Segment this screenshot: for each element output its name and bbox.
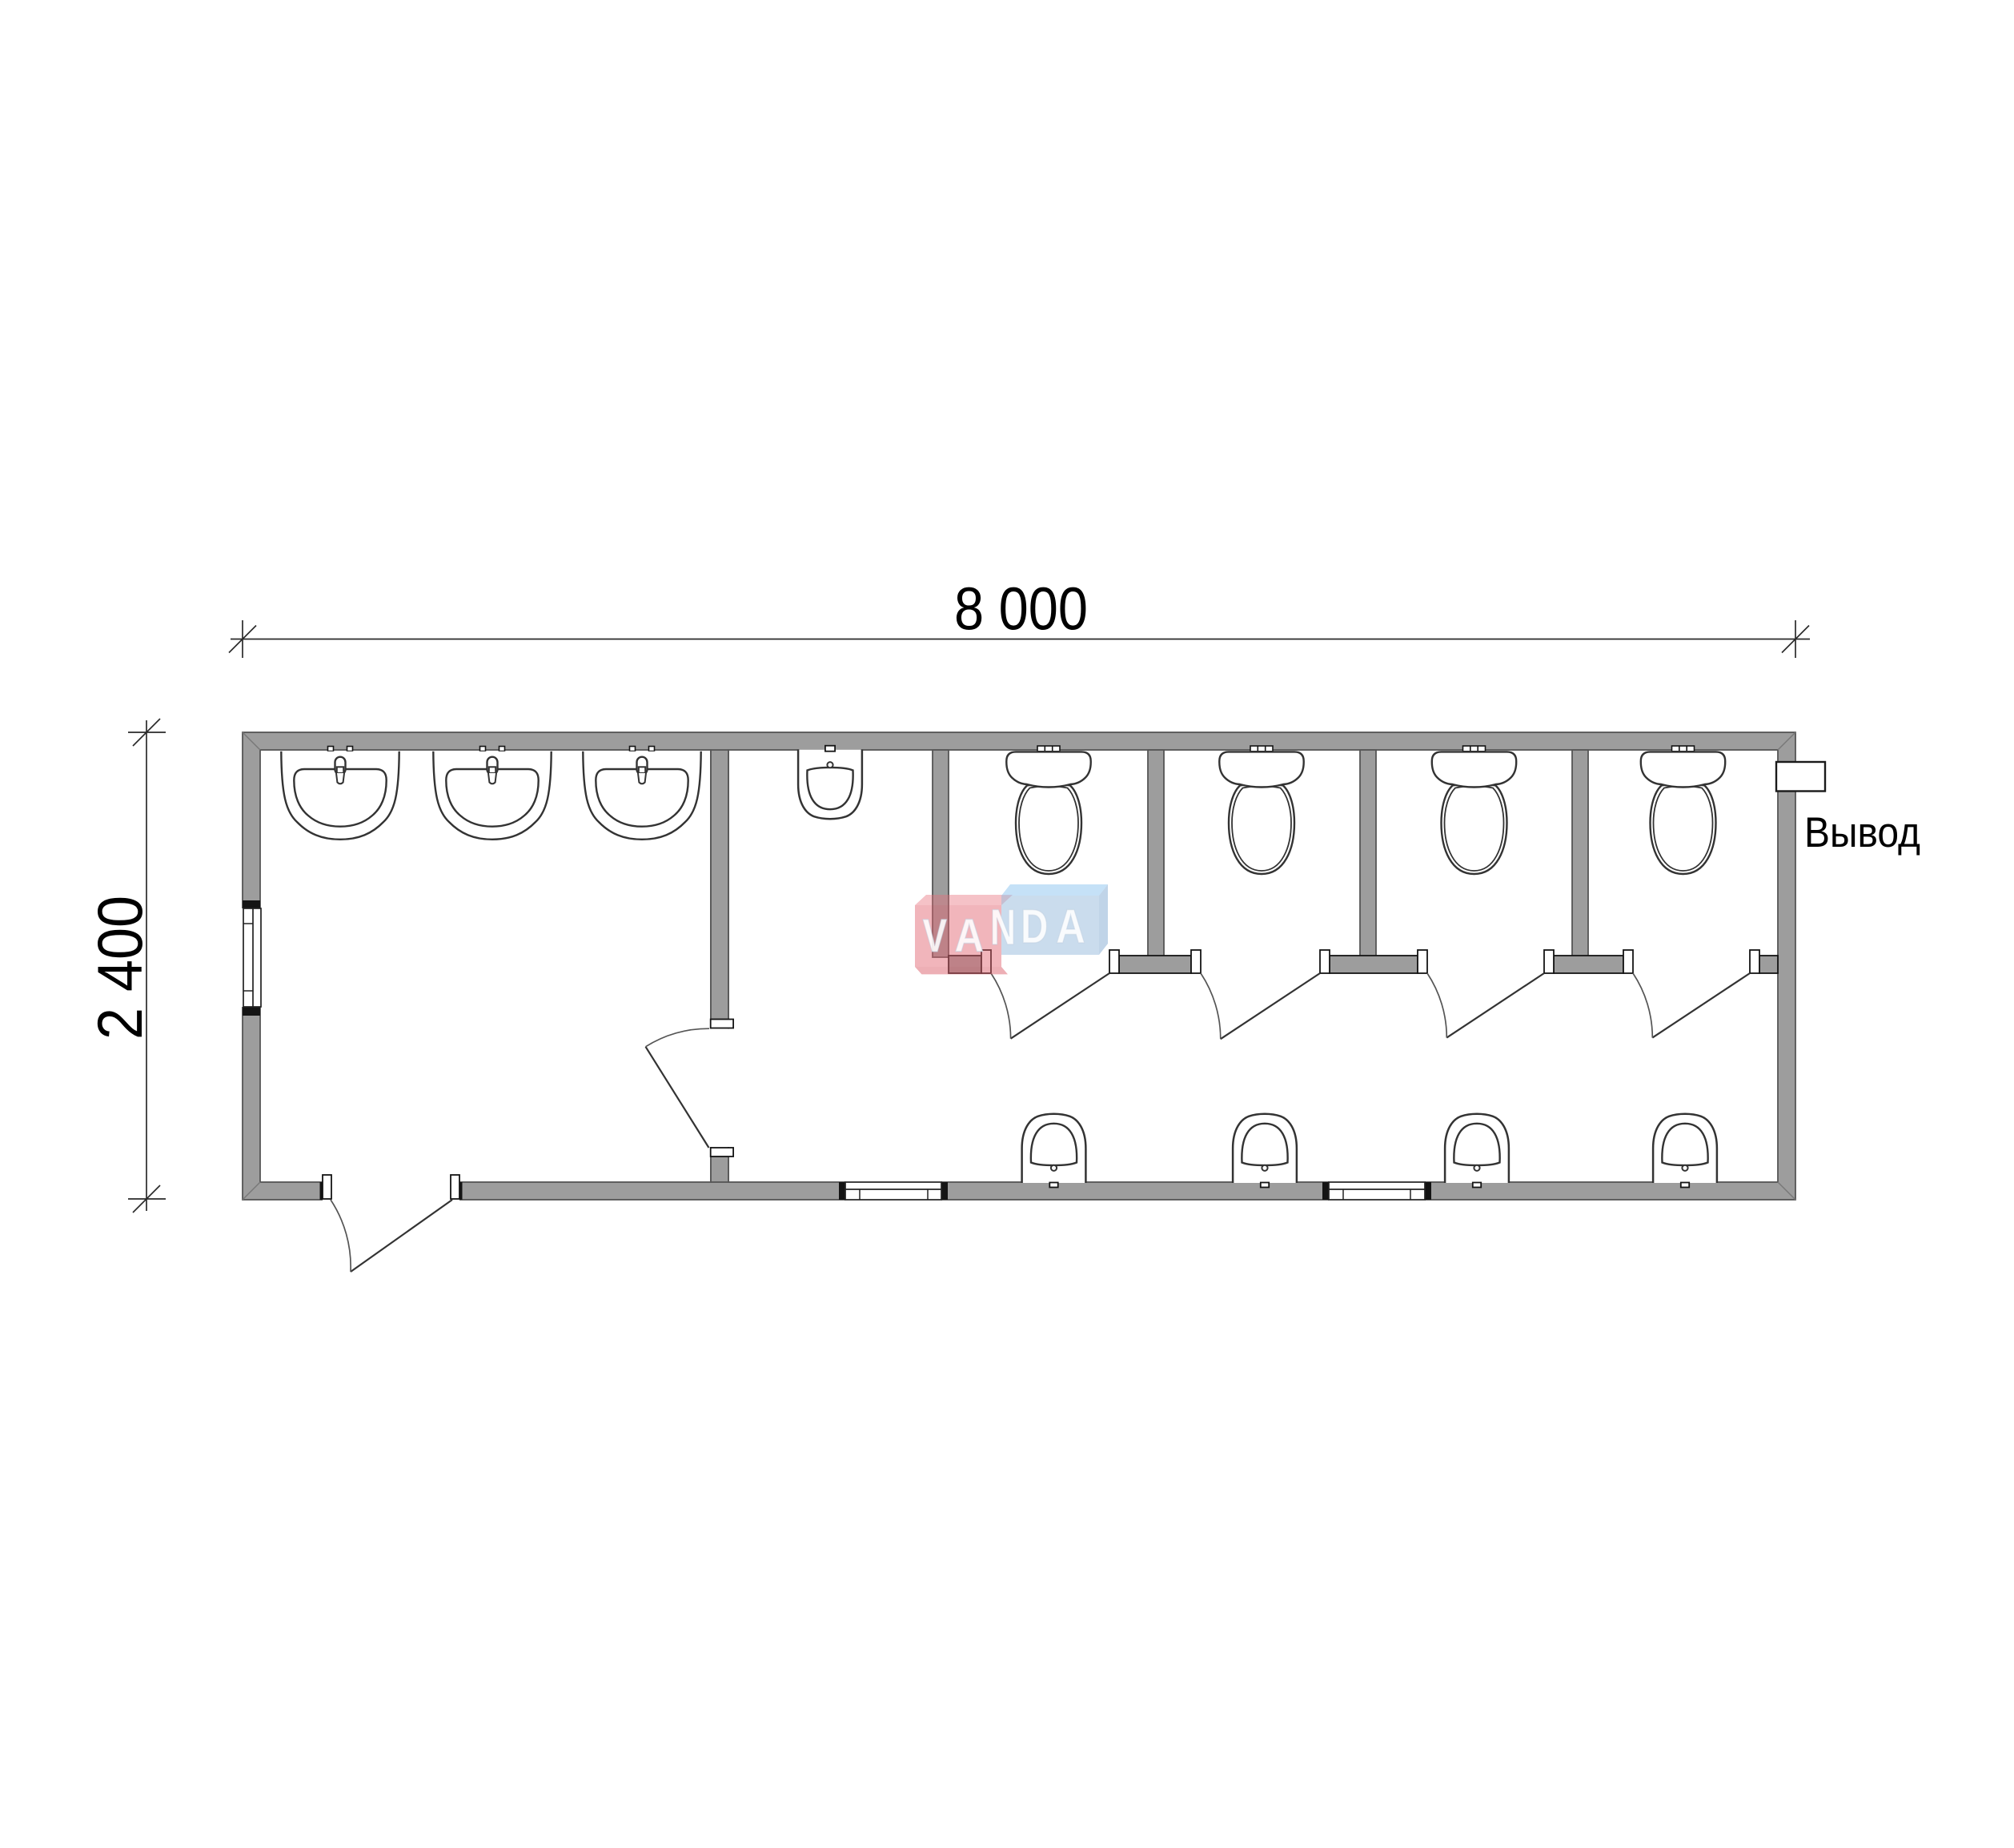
svg-text:A: A xyxy=(1056,900,1085,953)
svg-text:N: N xyxy=(990,900,1016,956)
svg-text:V: V xyxy=(923,910,948,962)
svg-text:A: A xyxy=(955,910,985,962)
svg-text:2 400: 2 400 xyxy=(84,896,155,1040)
svg-text:8 000: 8 000 xyxy=(954,575,1088,643)
svg-text:Вывод: Вывод xyxy=(1804,809,1920,856)
svg-text:D: D xyxy=(1021,900,1049,953)
